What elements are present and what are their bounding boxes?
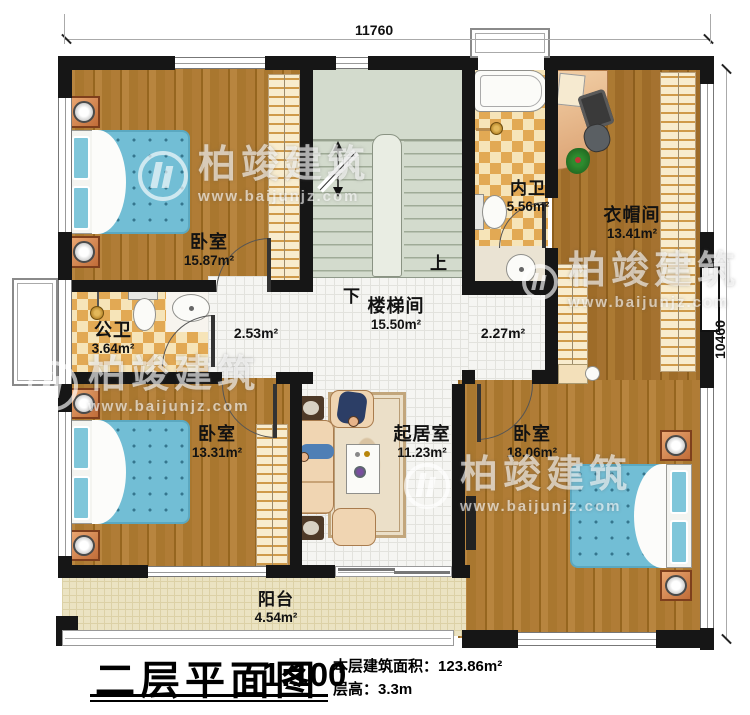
nightstand [68, 236, 100, 268]
room-label-public-bath: 公卫 3.64m² [92, 320, 135, 356]
wall [545, 248, 558, 384]
room-label-balcony: 阳台 4.54m² [255, 590, 298, 625]
bay-window-opening [478, 56, 544, 70]
door-leaf [267, 238, 271, 292]
window [58, 98, 72, 232]
window [518, 632, 656, 646]
wall [452, 384, 465, 568]
window [700, 84, 714, 232]
door-leaf [273, 384, 277, 438]
bay-window-top [470, 28, 550, 58]
shower-head-icon [490, 122, 503, 135]
dimension-line-top [65, 39, 710, 40]
floor-height-value: 3.3m [378, 681, 412, 698]
room-name: 公卫 [92, 320, 135, 341]
nightstand [660, 430, 692, 461]
coffee-table-flowers [354, 466, 366, 478]
room-area: 3.64m² [92, 341, 135, 357]
room-area: 18.06m² [507, 445, 557, 461]
wall [656, 630, 714, 648]
room-name: 阳台 [255, 590, 298, 610]
sink-drain [189, 306, 194, 311]
room-label-living-room: 起居室 11.23m² [394, 424, 451, 460]
person-head [348, 416, 359, 427]
stair-down-label: 下 [343, 282, 360, 307]
balcony-railing [62, 630, 454, 646]
pillow [72, 136, 90, 180]
shower-head-icon [90, 306, 104, 320]
floor-area-value: 123.86m² [438, 658, 502, 675]
room-name: 衣帽间 [604, 205, 661, 226]
nightstand [660, 570, 692, 601]
room-name: 起居室 [394, 424, 451, 445]
wall [544, 56, 714, 70]
wardrobe [556, 264, 588, 372]
wardrobe [268, 74, 300, 288]
pillow [670, 470, 688, 514]
hall-area-right: 2.27m² [481, 325, 525, 341]
wall [300, 64, 313, 292]
armchair [332, 508, 376, 546]
nightstand [68, 388, 100, 419]
wall [545, 64, 558, 198]
window [58, 280, 72, 384]
wall [462, 281, 556, 295]
wall [462, 630, 518, 648]
room-name: 楼梯间 [368, 296, 425, 317]
room-area: 11.23m² [394, 445, 451, 461]
pillow [72, 186, 90, 230]
wall [58, 56, 72, 98]
wardrobe [660, 72, 696, 372]
window [148, 566, 266, 577]
room-area: 15.50m² [368, 317, 425, 333]
wall [532, 370, 558, 384]
wardrobe [256, 424, 288, 566]
room-label-inner-bath: 内卫 5.56m² [507, 179, 550, 214]
sliding-door-panel [338, 568, 395, 571]
wall [58, 232, 72, 280]
room-area: 15.87m² [184, 253, 234, 269]
room-label-bedroom-top-left: 卧室 15.87m² [184, 232, 234, 268]
wall [58, 384, 72, 412]
room-name: 卧室 [192, 424, 242, 445]
wall [290, 384, 302, 578]
title-underline [90, 694, 328, 697]
pillow [72, 426, 90, 470]
plant-flower [575, 157, 581, 163]
window [336, 57, 368, 69]
sink-drain [519, 267, 524, 272]
nightstand [68, 530, 100, 561]
room-area: 13.31m² [192, 445, 242, 461]
floor-height-label: 层高： [333, 681, 378, 698]
toilet-bowl [482, 195, 507, 229]
extension-line [710, 14, 711, 44]
toilet-bowl [133, 298, 156, 331]
door-leaf [211, 315, 215, 367]
bay-window-left [12, 278, 58, 386]
wall [270, 280, 313, 292]
coffee-table-cup [355, 452, 360, 457]
hall-area-left: 2.53m² [234, 325, 278, 341]
wall [462, 64, 475, 295]
stair-direction-arrow [312, 138, 366, 200]
title-underline [90, 700, 328, 702]
dimension-top-value: 11760 [355, 22, 393, 38]
tv-unit [466, 496, 476, 550]
door-leaf [477, 384, 481, 442]
sliding-door-panel [394, 571, 450, 574]
nightstand [68, 96, 100, 128]
room-label-bedroom-bottom-left: 卧室 13.31m² [192, 424, 242, 460]
floor-area-label: 本层建筑面积： [333, 658, 438, 675]
wall [58, 372, 222, 384]
wall [700, 56, 714, 84]
wall [452, 565, 470, 578]
wall [462, 370, 475, 384]
stair-up-label: 上 [430, 249, 447, 274]
stair-center-rail [372, 134, 402, 277]
floor-height-text: 层高：3.3m [333, 678, 412, 699]
window [700, 388, 714, 628]
wall [58, 565, 148, 578]
room-label-cloakroom: 衣帽间 13.41m² [604, 205, 661, 241]
room-name: 内卫 [507, 179, 550, 199]
window [58, 412, 72, 556]
wall [66, 280, 216, 292]
pillow [72, 476, 90, 520]
bench [558, 364, 588, 384]
stool [585, 366, 600, 381]
wall [266, 565, 335, 578]
window [175, 57, 265, 69]
room-area: 13.41m² [604, 226, 661, 242]
room-name: 卧室 [184, 232, 234, 253]
floor-area-text: 本层建筑面积：123.86m² [333, 655, 502, 676]
coffee-table-cup [364, 451, 370, 457]
room-area: 4.54m² [255, 610, 298, 626]
floor-plan-canvas: 卧室 15.87m² 内卫 5.56m² 衣帽间 13.41m² 公卫 3.64… [0, 0, 750, 715]
bathtub-inner [480, 75, 542, 107]
wall [276, 372, 313, 384]
wall [58, 56, 175, 70]
room-label-stairwell: 楼梯间 15.50m² [368, 296, 425, 332]
dimension-right-value: 10460 [712, 320, 728, 359]
extension-line [64, 14, 65, 44]
room-label-bedroom-bottom-right: 卧室 18.06m² [507, 424, 557, 460]
room-name: 卧室 [507, 424, 557, 445]
pillow [670, 520, 688, 564]
room-area: 5.56m² [507, 199, 550, 215]
